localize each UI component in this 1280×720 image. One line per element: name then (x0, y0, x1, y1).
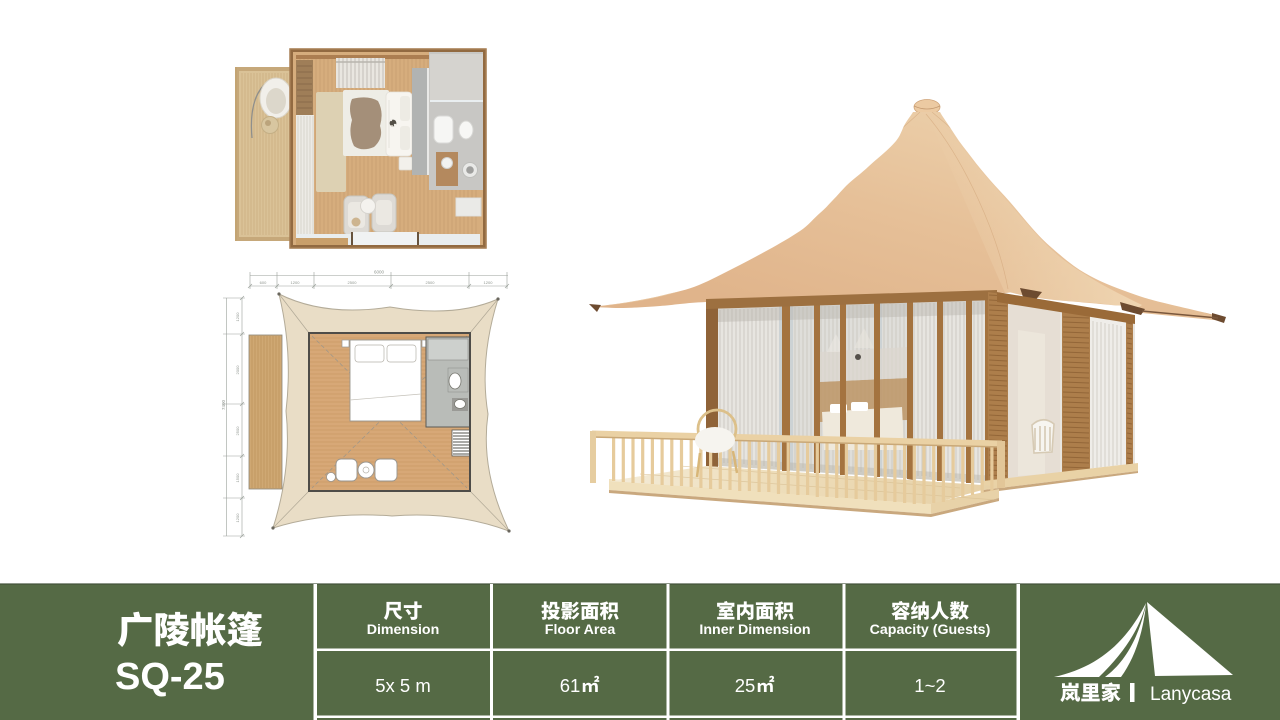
svg-text:2500: 2500 (235, 426, 240, 436)
svg-text:25: 25 (735, 675, 756, 696)
svg-text:Dimension: Dimension (367, 622, 440, 638)
svg-text:1200: 1200 (235, 513, 240, 523)
svg-text:7400: 7400 (221, 399, 226, 410)
svg-text:Inner Dimension: Inner Dimension (699, 622, 810, 638)
svg-text:5x 5 m: 5x 5 m (375, 675, 431, 696)
svg-text:2000: 2000 (235, 365, 240, 375)
svg-text:6000: 6000 (374, 270, 385, 275)
svg-text:SQ-25: SQ-25 (115, 656, 225, 698)
svg-text:Capacity (Guests): Capacity (Guests) (870, 622, 991, 638)
svg-text:61: 61 (560, 675, 581, 696)
svg-text:1200: 1200 (484, 280, 494, 285)
svg-text:1200: 1200 (235, 312, 240, 322)
svg-text:1200: 1200 (291, 280, 301, 285)
svg-text:2500: 2500 (348, 280, 358, 285)
svg-text:600: 600 (260, 280, 267, 285)
svg-text:1500: 1500 (235, 473, 240, 483)
svg-text:Lanycasa: Lanycasa (1150, 684, 1232, 705)
svg-text:2500: 2500 (426, 280, 436, 285)
svg-text:1~2: 1~2 (914, 675, 945, 696)
svg-text:Floor Area: Floor Area (545, 622, 616, 638)
